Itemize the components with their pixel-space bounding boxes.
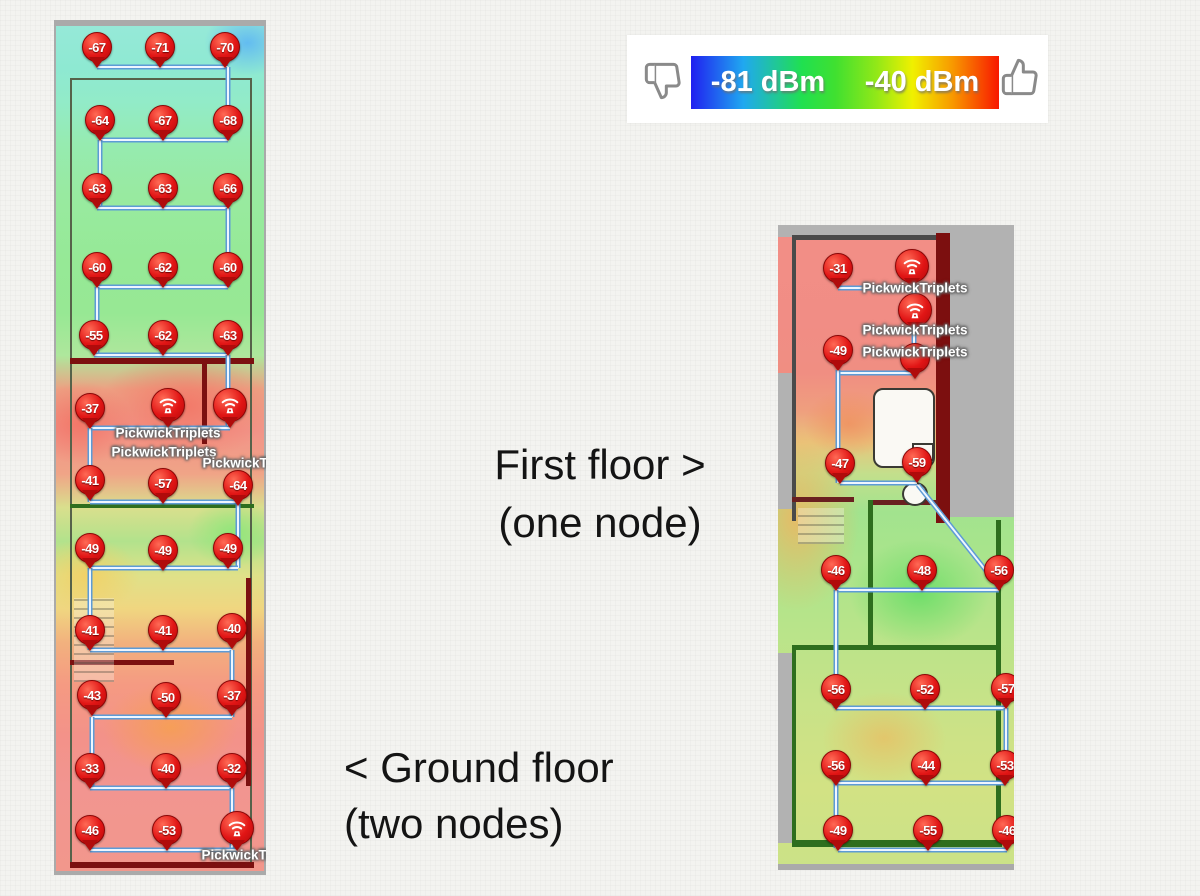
pin-tail xyxy=(155,493,171,504)
first-floor-caption: First floor > (one node) xyxy=(430,436,770,552)
signal-pin: -71 xyxy=(144,32,176,68)
pin-tail xyxy=(155,560,171,571)
pin-tail xyxy=(158,707,174,718)
stairs xyxy=(798,508,844,544)
signal-pin: -46 xyxy=(820,555,852,591)
pin-tail xyxy=(89,277,105,288)
pin-tail xyxy=(830,278,846,289)
thumbs-up-icon xyxy=(1000,57,1040,97)
pin-tail xyxy=(155,198,171,209)
wall xyxy=(792,235,796,521)
signal-pin: -57 xyxy=(147,468,179,504)
pin-tail xyxy=(82,640,98,651)
pin-tail xyxy=(222,417,238,428)
signal-pin: -63 xyxy=(212,320,244,356)
signal-pin: -37 xyxy=(216,680,248,716)
page: { "legend": { "low_label": "-81 dBm", "h… xyxy=(0,0,1200,896)
pin-tail xyxy=(89,57,105,68)
signal-pin: -57 xyxy=(990,673,1014,709)
signal-scale-bar: -81 dBm -40 dBm xyxy=(691,56,999,109)
pin-tail xyxy=(907,368,923,379)
signal-pin: -31 xyxy=(822,253,854,289)
signal-pin: -37 xyxy=(74,393,106,429)
signal-pin: -41 xyxy=(74,465,106,501)
node-name-label: PickwickTriplets xyxy=(862,345,967,360)
pin-tail xyxy=(909,472,925,483)
ground-floor-heatmap: -67-71-70-64-67-68-63-63-66-60-62-60-55-… xyxy=(54,20,266,875)
wifi-node-pin xyxy=(212,388,248,428)
pin-tail xyxy=(82,778,98,789)
wifi-node-pin xyxy=(219,811,255,851)
pin-tail xyxy=(828,775,844,786)
pin-tail xyxy=(918,775,934,786)
signal-pin: -55 xyxy=(912,815,944,851)
wall xyxy=(70,862,254,868)
pin-tail xyxy=(991,580,1007,591)
signal-pin: -44 xyxy=(910,750,942,786)
wall xyxy=(868,500,873,645)
signal-pin: -63 xyxy=(147,173,179,209)
pin-tail xyxy=(832,473,848,484)
pin-tail xyxy=(82,840,98,851)
signal-pin: -52 xyxy=(909,674,941,710)
node-name-label: PickwickTriplets xyxy=(201,848,266,863)
wall xyxy=(792,645,796,847)
pin-tail xyxy=(155,130,171,141)
scale-low-label: -81 dBm xyxy=(711,66,825,99)
wall xyxy=(794,235,942,240)
signal-pin: -46 xyxy=(74,815,106,851)
pin-tail xyxy=(217,57,233,68)
pin-tail xyxy=(828,699,844,710)
pin-tail xyxy=(84,705,100,716)
pin-tail xyxy=(155,277,171,288)
pin-tail xyxy=(917,699,933,710)
signal-pin: -33 xyxy=(74,753,106,789)
signal-pin: -56 xyxy=(820,750,852,786)
signal-pin: -62 xyxy=(147,320,179,356)
signal-pin: -48 xyxy=(906,555,938,591)
pin-tail xyxy=(220,558,236,569)
pin-tail xyxy=(152,57,168,68)
signal-pin: -49 xyxy=(74,533,106,569)
node-name-label: PickwickTriplets xyxy=(111,445,216,460)
signal-pin: -40 xyxy=(216,613,248,649)
pin-tail xyxy=(155,640,171,651)
pin-tail xyxy=(220,130,236,141)
signal-pin: -64 xyxy=(84,105,116,141)
thumbs-down-icon xyxy=(643,61,683,101)
pin-tail xyxy=(82,490,98,501)
signal-pin: -40 xyxy=(150,753,182,789)
pin-tail xyxy=(159,840,175,851)
pin-tail xyxy=(828,580,844,591)
pin-tail xyxy=(224,778,240,789)
pin-tail xyxy=(830,360,846,371)
pin-tail xyxy=(86,345,102,356)
signal-pin: -49 xyxy=(822,815,854,851)
scale-high-label: -40 dBm xyxy=(865,66,979,99)
signal-pin: -60 xyxy=(212,252,244,288)
signal-pin: -70 xyxy=(209,32,241,68)
signal-pin: -49 xyxy=(822,335,854,371)
toilet xyxy=(902,482,928,506)
ground-floor-caption-line1: < Ground floor xyxy=(344,740,704,796)
pin-tail xyxy=(155,345,171,356)
pin-tail xyxy=(999,840,1014,851)
signal-pin: -55 xyxy=(78,320,110,356)
signal-pin: -43 xyxy=(76,680,108,716)
pin-tail xyxy=(230,495,246,506)
pin-tail xyxy=(220,277,236,288)
pin-tail xyxy=(158,778,174,789)
signal-pin: -62 xyxy=(147,252,179,288)
signal-pin: -47 xyxy=(824,448,856,484)
node-name-label: PickwickTriplets xyxy=(202,456,266,471)
pin-tail xyxy=(82,418,98,429)
signal-pin: -56 xyxy=(983,555,1014,591)
signal-pin: -56 xyxy=(820,674,852,710)
signal-pin: -68 xyxy=(212,105,244,141)
unsurveyed-area xyxy=(948,225,1014,517)
wall xyxy=(792,497,854,502)
pin-tail xyxy=(92,130,108,141)
signal-pin: -49 xyxy=(212,533,244,569)
ground-floor-caption-line2: (two nodes) xyxy=(344,796,704,852)
node-name-label: PickwickTriplets xyxy=(862,323,967,338)
pin-tail xyxy=(920,840,936,851)
signal-pin: -63 xyxy=(81,173,113,209)
pin-tail xyxy=(224,638,240,649)
wall xyxy=(792,645,998,650)
pin-tail xyxy=(220,345,236,356)
signal-legend: -81 dBm -40 dBm xyxy=(627,35,1048,123)
pin-tail xyxy=(220,198,236,209)
wall xyxy=(936,233,950,523)
first-floor-caption-line2: (one node) xyxy=(430,494,770,552)
pin-tail xyxy=(830,840,846,851)
pin-tail xyxy=(224,705,240,716)
signal-pin: -64 xyxy=(222,470,254,506)
signal-pin: -66 xyxy=(212,173,244,209)
signal-pin: -60 xyxy=(81,252,113,288)
node-name-label: PickwickTriplets xyxy=(862,281,967,296)
pin-tail xyxy=(914,580,930,591)
signal-pin: -41 xyxy=(147,615,179,651)
signal-pin: -59 xyxy=(901,447,933,483)
signal-pin: -32 xyxy=(216,753,248,789)
signal-pin: -49 xyxy=(147,535,179,571)
node-name-label: PickwickTriplets xyxy=(115,426,220,441)
signal-pin: -50 xyxy=(150,682,182,718)
signal-pin: -41 xyxy=(74,615,106,651)
signal-pin: -67 xyxy=(147,105,179,141)
pin-tail xyxy=(82,558,98,569)
wifi-node-pin xyxy=(150,388,186,428)
wall xyxy=(868,500,938,505)
ground-floor-caption: < Ground floor (two nodes) xyxy=(344,740,704,852)
pin-tail xyxy=(997,775,1013,786)
first-floor-caption-line1: First floor > xyxy=(430,436,770,494)
signal-pin: -46 xyxy=(991,815,1014,851)
pin-tail xyxy=(89,198,105,209)
pin-tail xyxy=(998,698,1014,709)
signal-pin: -67 xyxy=(81,32,113,68)
first-floor-heatmap: -31-49-47-59-46-48-56-56-52-57-56-44-53-… xyxy=(778,225,1014,870)
signal-pin: -53 xyxy=(151,815,183,851)
wall xyxy=(70,358,254,364)
signal-pin: -53 xyxy=(989,750,1014,786)
